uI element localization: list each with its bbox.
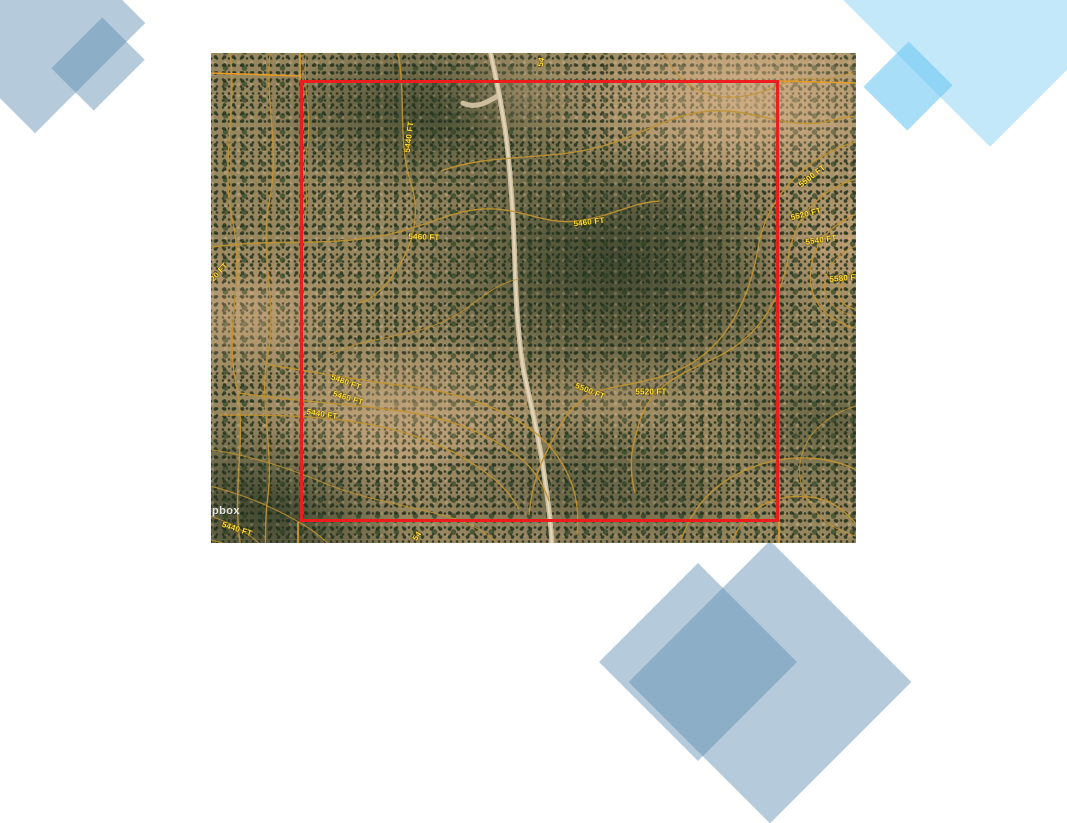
elevation-label: 54 [536,57,546,68]
elevation-label: 54 [411,530,424,543]
elevation-label: 5500 FT [574,381,606,401]
elevation-label: 5540 FT [805,233,837,246]
elevation-label: 20 FT [211,261,230,283]
elevation-label: 5440 FT [306,407,338,421]
satellite-map[interactable]: 5440 FT5460 FT5460 FT5500 FT5520 FT5540 … [211,53,856,543]
elevation-label: 5520 FT [635,388,666,397]
elevation-labels-layer: 5440 FT5460 FT5460 FT5500 FT5520 FT5540 … [211,53,856,543]
elevation-label: 5440 FT [221,520,253,538]
elevation-label: 5460 FT [408,232,439,242]
elevation-label: 5520 FT [790,206,822,222]
elevation-label: 5440 FT [403,121,416,153]
elevation-label: 5580 FT [829,272,856,284]
elevation-label: 5460 FT [332,389,364,407]
elevation-label: 5500 FT [797,163,827,189]
mapbox-watermark[interactable]: pbox [212,505,240,517]
elevation-label: 5460 FT [573,216,605,229]
slide-canvas: { "slide": { "background": "#ffffff" }, … [0,0,1067,600]
